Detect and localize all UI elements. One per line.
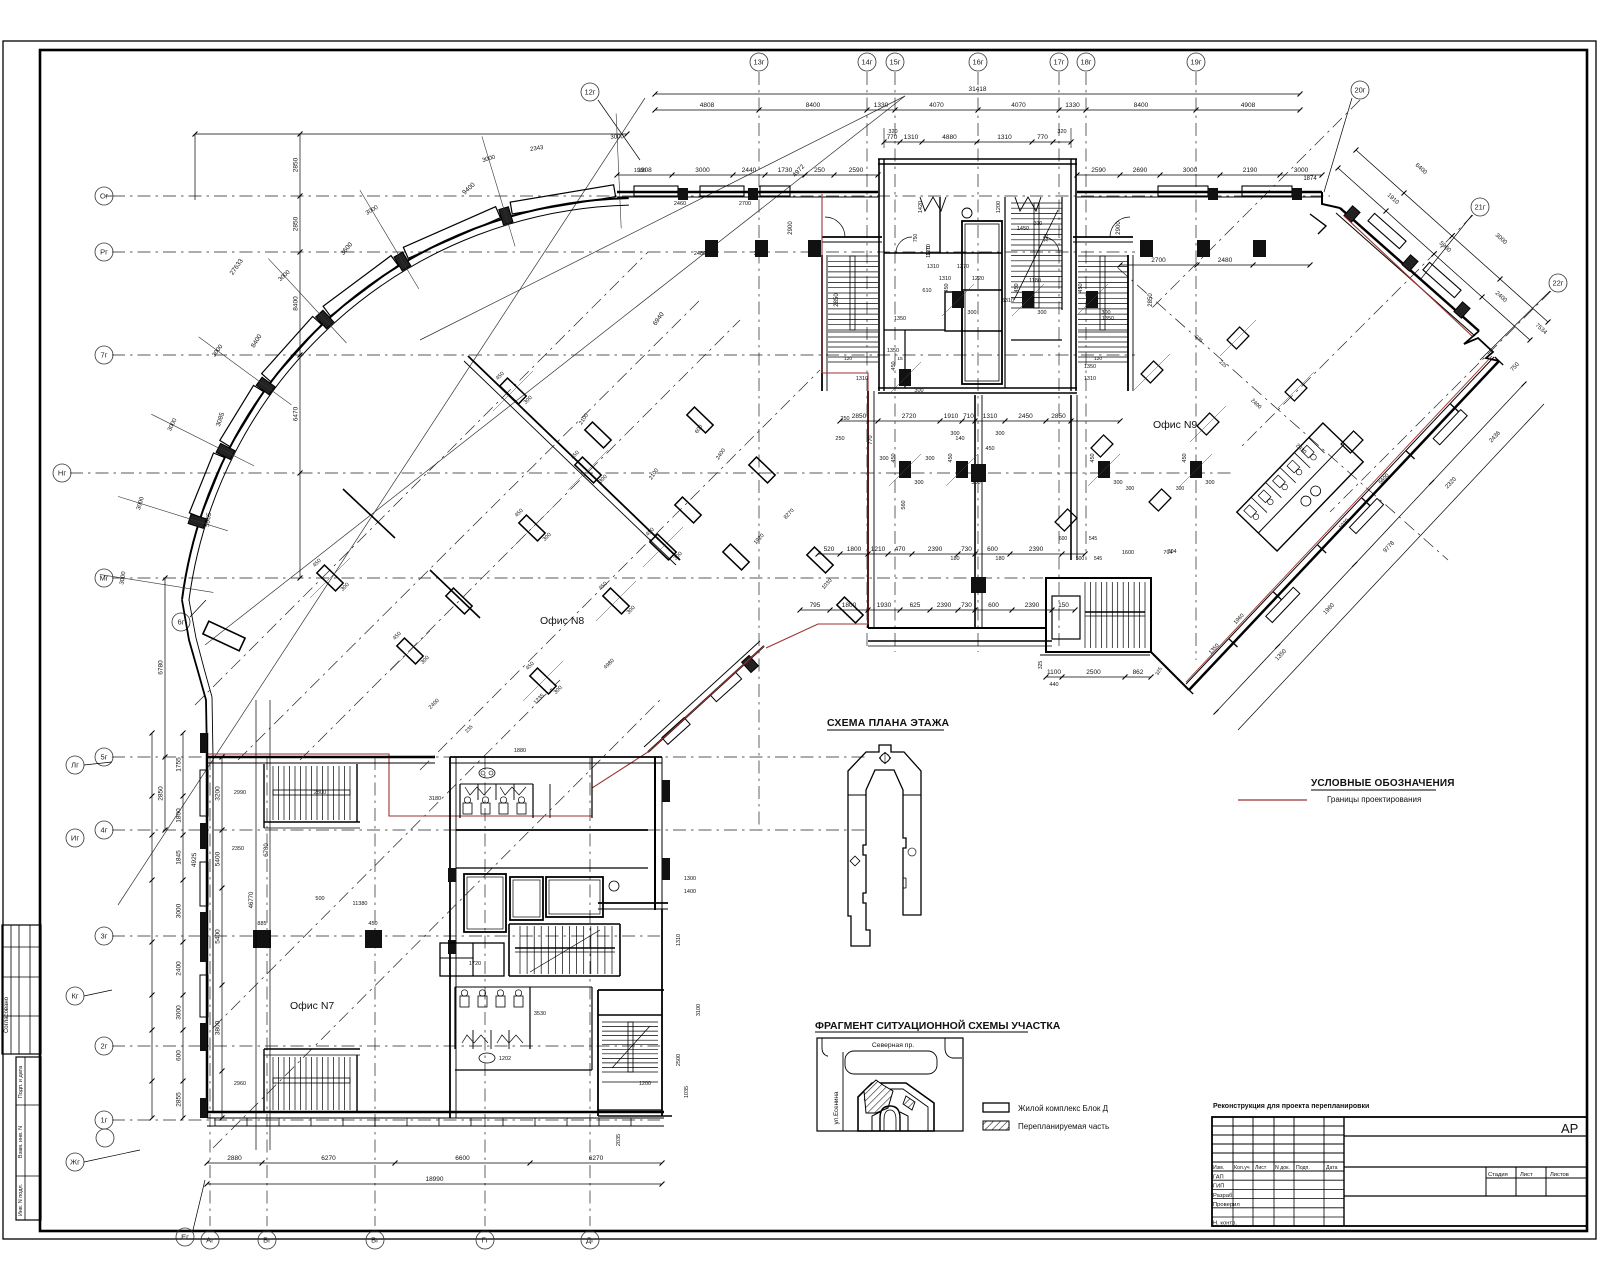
svg-text:1210: 1210 (871, 546, 886, 553)
svg-text:16г: 16г (972, 58, 983, 67)
svg-text:УСЛОВНЫЕ ОБОЗНАЧЕНИЯ: УСЛОВНЫЕ ОБОЗНАЧЕНИЯ (1311, 778, 1455, 789)
svg-text:2390: 2390 (937, 602, 952, 609)
svg-text:1400: 1400 (684, 889, 696, 895)
svg-text:6600: 6600 (455, 1155, 470, 1162)
svg-text:2450: 2450 (1018, 413, 1033, 420)
svg-text:300: 300 (1037, 310, 1046, 316)
svg-text:470: 470 (895, 546, 906, 553)
svg-text:3000: 3000 (1294, 167, 1309, 174)
svg-text:2800: 2800 (314, 790, 326, 796)
svg-text:2590: 2590 (849, 167, 864, 174)
svg-text:2035: 2035 (616, 1134, 622, 1146)
svg-text:2390: 2390 (1029, 546, 1044, 553)
svg-text:300: 300 (1113, 480, 1122, 486)
svg-text:3000: 3000 (695, 167, 710, 174)
svg-text:3г: 3г (101, 932, 108, 941)
svg-text:Изм.: Изм. (1213, 1165, 1224, 1171)
svg-text:250: 250 (814, 167, 825, 174)
svg-text:Границы проектирования: Границы проектирования (1327, 795, 1421, 804)
svg-text:2850: 2850 (293, 157, 300, 172)
svg-text:22г: 22г (1552, 279, 1563, 288)
svg-text:Подп. и дата: Подп. и дата (18, 1065, 24, 1098)
svg-text:Офис N7: Офис N7 (290, 1000, 334, 1012)
svg-text:2400: 2400 (176, 961, 183, 976)
svg-text:1035: 1035 (684, 1086, 690, 1098)
svg-text:2350: 2350 (232, 846, 244, 852)
svg-text:450: 450 (1014, 283, 1020, 292)
svg-text:1310: 1310 (904, 134, 919, 141)
svg-text:1310: 1310 (927, 264, 939, 270)
svg-text:300: 300 (925, 456, 934, 462)
svg-text:14г: 14г (861, 58, 872, 67)
svg-text:1270: 1270 (957, 264, 969, 270)
svg-text:1200: 1200 (996, 201, 1002, 213)
svg-text:3000: 3000 (1183, 167, 1198, 174)
svg-text:15: 15 (897, 356, 903, 362)
svg-text:310: 310 (1034, 221, 1043, 227)
svg-text:2390: 2390 (928, 546, 943, 553)
svg-text:150: 150 (1058, 602, 1069, 609)
svg-text:ГАП: ГАП (1213, 1175, 1224, 1181)
svg-text:АР: АР (1561, 1121, 1578, 1136)
svg-text:3530: 3530 (534, 1011, 546, 1017)
svg-text:2460: 2460 (674, 201, 686, 207)
svg-text:2г: 2г (101, 1042, 108, 1051)
svg-text:2500: 2500 (676, 1054, 682, 1066)
svg-text:2880: 2880 (227, 1155, 242, 1162)
svg-text:180: 180 (995, 556, 1004, 562)
svg-text:320: 320 (888, 129, 897, 135)
svg-text:3180: 3180 (429, 796, 441, 802)
svg-text:Инв. N подл.: Инв. N подл. (18, 1183, 24, 1216)
svg-text:3000: 3000 (610, 134, 624, 141)
svg-text:1220: 1220 (972, 276, 984, 282)
svg-text:17г: 17г (1053, 58, 1064, 67)
svg-text:300: 300 (914, 388, 923, 394)
svg-text:120: 120 (1094, 356, 1102, 362)
svg-text:8400: 8400 (1134, 102, 1149, 109)
svg-text:6780: 6780 (158, 660, 165, 675)
svg-text:5310: 5310 (1002, 298, 1014, 304)
svg-text:4925: 4925 (191, 852, 199, 867)
svg-text:1720: 1720 (469, 961, 481, 967)
svg-text:450: 450 (944, 283, 950, 292)
svg-text:2700: 2700 (1151, 257, 1166, 264)
svg-text:1900: 1900 (634, 168, 646, 174)
svg-text:710: 710 (963, 413, 974, 420)
svg-text:450: 450 (1078, 283, 1084, 292)
svg-text:2440: 2440 (742, 167, 757, 174)
svg-text:20г: 20г (1354, 86, 1365, 95)
svg-text:Вг: Вг (371, 1236, 379, 1245)
svg-text:730: 730 (961, 602, 972, 609)
svg-text:Дата: Дата (1326, 1165, 1338, 1171)
svg-text:1100: 1100 (1047, 669, 1061, 676)
svg-text:1600: 1600 (1122, 550, 1134, 556)
svg-text:4070: 4070 (929, 102, 944, 109)
svg-text:300: 300 (1205, 480, 1214, 486)
svg-text:450: 450 (1182, 453, 1188, 462)
svg-text:2855: 2855 (176, 1092, 183, 1107)
svg-text:Офис N9: Офис N9 (1153, 419, 1197, 431)
svg-text:600: 600 (988, 602, 999, 609)
svg-text:13г: 13г (753, 58, 764, 67)
svg-text:1930: 1930 (877, 602, 892, 609)
svg-text:730: 730 (961, 546, 972, 553)
svg-text:Реконструкция для проекта п: Реконструкция для проекта перепланировки (1213, 1103, 1369, 1110)
svg-text:1310: 1310 (676, 934, 682, 946)
svg-text:СХЕМА ПЛАНА ЭТАЖА: СХЕМА ПЛАНА ЭТАЖА (827, 717, 950, 729)
svg-text:2690: 2690 (1133, 167, 1148, 174)
svg-text:1330: 1330 (874, 102, 889, 109)
svg-text:885: 885 (257, 921, 266, 927)
svg-text:Иг: Иг (71, 834, 79, 843)
svg-text:862: 862 (1133, 669, 1144, 676)
svg-text:2850: 2850 (158, 786, 165, 801)
svg-text:Лг: Лг (71, 761, 79, 770)
svg-text:7г: 7г (101, 351, 108, 360)
svg-text:2700: 2700 (739, 201, 751, 207)
svg-text:Листов: Листов (1550, 1172, 1569, 1178)
svg-text:6470: 6470 (293, 406, 300, 421)
svg-text:5г: 5г (101, 753, 108, 762)
svg-text:18990: 18990 (425, 1176, 443, 1183)
svg-text:704: 704 (1167, 549, 1176, 555)
svg-text:520: 520 (824, 546, 835, 553)
svg-text:3000: 3000 (176, 903, 183, 918)
svg-text:2720: 2720 (902, 413, 917, 420)
svg-text:Взам. инв. N: Взам. инв. N (18, 1126, 24, 1158)
svg-text:Подп.: Подп. (1296, 1165, 1310, 1171)
svg-text:180: 180 (950, 556, 959, 562)
svg-text:4908: 4908 (1241, 102, 1256, 109)
svg-text:1350: 1350 (1084, 364, 1096, 370)
svg-text:2990: 2990 (234, 790, 246, 796)
svg-text:Кг: Кг (71, 992, 78, 1001)
svg-text:Лист: Лист (1255, 1165, 1267, 1171)
svg-text:2190: 2190 (1243, 167, 1258, 174)
svg-text:6270: 6270 (589, 1155, 604, 1162)
svg-text:4808: 4808 (700, 102, 715, 109)
svg-text:1330: 1330 (1065, 102, 1080, 109)
svg-text:5400: 5400 (215, 851, 222, 866)
svg-text:1200: 1200 (639, 1081, 651, 1087)
svg-text:ФРАГМЕНТ СИТУАЦИОННОЙ СХЕМЫ: ФРАГМЕНТ СИТУАЦИОННОЙ СХЕМЫ УЧАСТКА (815, 1019, 1061, 1032)
svg-text:140: 140 (955, 436, 964, 442)
svg-text:1350: 1350 (887, 348, 899, 354)
svg-text:500: 500 (315, 896, 324, 902)
svg-text:300: 300 (971, 480, 980, 486)
svg-text:Жг: Жг (70, 1158, 80, 1167)
svg-text:1880: 1880 (514, 748, 526, 754)
svg-text:6г: 6г (178, 618, 185, 627)
svg-text:300: 300 (914, 480, 923, 486)
svg-text:300: 300 (879, 456, 888, 462)
svg-text:2590: 2590 (1091, 167, 1106, 174)
svg-text:1310: 1310 (939, 276, 951, 282)
svg-text:1874: 1874 (1303, 176, 1317, 182)
svg-text:Нг: Нг (58, 469, 66, 478)
svg-text:2480: 2480 (1218, 257, 1233, 264)
svg-text:2850: 2850 (293, 216, 300, 231)
svg-text:4880: 4880 (942, 134, 957, 141)
svg-text:440: 440 (1049, 682, 1058, 688)
svg-text:Перепланируемая часть: Перепланируемая часть (1018, 1122, 1109, 1131)
svg-text:450: 450 (891, 361, 897, 370)
svg-text:Аг: Аг (206, 1236, 214, 1245)
svg-text:545: 545 (1094, 556, 1103, 562)
svg-text:770: 770 (887, 134, 898, 141)
svg-text:Гг: Гг (482, 1236, 489, 1245)
svg-text:450: 450 (368, 921, 377, 927)
svg-text:1420: 1420 (918, 201, 924, 213)
svg-text:720: 720 (1044, 234, 1050, 243)
svg-text:8400: 8400 (293, 296, 300, 311)
svg-text:770: 770 (1037, 134, 1048, 141)
svg-text:300: 300 (967, 310, 976, 316)
svg-text:600: 600 (176, 1050, 183, 1061)
svg-text:11380: 11380 (353, 901, 368, 907)
svg-text:Офис N8: Офис N8 (540, 615, 584, 627)
svg-text:300: 300 (1176, 486, 1185, 492)
svg-text:2960: 2960 (234, 1081, 246, 1087)
svg-text:1300: 1300 (684, 876, 696, 882)
svg-text:450: 450 (891, 453, 897, 462)
svg-text:1310: 1310 (997, 134, 1012, 141)
svg-text:ул.Есенина: ул.Есенина (833, 1091, 840, 1124)
svg-text:325: 325 (1038, 661, 1044, 670)
svg-text:1450: 1450 (1017, 226, 1029, 232)
svg-text:2900: 2900 (1116, 221, 1122, 235)
svg-text:15г: 15г (889, 58, 900, 67)
svg-text:610: 610 (922, 288, 931, 294)
svg-text:ГИП: ГИП (1213, 1184, 1224, 1190)
svg-text:5400: 5400 (215, 929, 222, 944)
svg-text:1202: 1202 (499, 1056, 511, 1062)
svg-text:6270: 6270 (321, 1155, 336, 1162)
svg-text:300: 300 (995, 431, 1004, 437)
svg-text:1170: 1170 (926, 246, 932, 258)
svg-text:1755: 1755 (176, 757, 183, 772)
svg-text:2700: 2700 (754, 251, 766, 257)
svg-text:Рг: Рг (100, 248, 108, 257)
svg-text:1350: 1350 (894, 316, 906, 322)
svg-text:21г: 21г (1474, 203, 1485, 212)
svg-text:4070: 4070 (1011, 102, 1026, 109)
svg-text:625: 625 (910, 602, 921, 609)
svg-text:600: 600 (1059, 536, 1068, 542)
svg-text:2850: 2850 (1148, 293, 1154, 307)
svg-text:1350: 1350 (1102, 316, 1114, 322)
svg-text:3000: 3000 (176, 1005, 183, 1020)
svg-text:120: 120 (844, 356, 852, 362)
svg-text:Жилой комплекс Блок Д: Жилой комплекс Блок Д (1018, 1104, 1109, 1113)
svg-text:300: 300 (1126, 486, 1135, 492)
svg-text:8400: 8400 (806, 102, 821, 109)
svg-text:1310: 1310 (983, 413, 998, 420)
svg-text:2850: 2850 (852, 413, 867, 420)
svg-text:600: 600 (987, 546, 998, 553)
svg-text:18г: 18г (1080, 58, 1091, 67)
svg-text:1845: 1845 (176, 850, 183, 865)
svg-text:Ег: Ег (181, 1233, 189, 1242)
svg-text:12г: 12г (584, 88, 595, 97)
svg-text:2390: 2390 (1025, 602, 1040, 609)
svg-text:250: 250 (835, 436, 844, 442)
svg-text:Н. контр.: Н. контр. (1213, 1221, 1237, 1227)
svg-text:500: 500 (1076, 556, 1085, 562)
svg-text:31418: 31418 (968, 86, 986, 93)
svg-text:N док.: N док. (1275, 1165, 1290, 1171)
svg-text:3100: 3100 (696, 1004, 702, 1016)
svg-text:560: 560 (901, 500, 907, 509)
svg-text:450: 450 (948, 453, 954, 462)
svg-text:46770: 46770 (249, 891, 255, 908)
svg-text:545: 545 (1089, 536, 1098, 542)
svg-text:4г: 4г (101, 826, 108, 835)
svg-text:320: 320 (1057, 129, 1066, 135)
svg-text:1180: 1180 (1029, 278, 1041, 284)
svg-text:1310: 1310 (856, 376, 868, 382)
svg-text:450: 450 (985, 446, 994, 452)
svg-text:450: 450 (1090, 453, 1096, 462)
svg-text:Северная пр.: Северная пр. (872, 1042, 914, 1049)
svg-text:6780: 6780 (264, 843, 270, 857)
svg-text:Согласовано: Согласовано (4, 996, 10, 1033)
svg-text:1800: 1800 (176, 808, 183, 823)
svg-text:Кол.уч: Кол.уч (1234, 1165, 1250, 1171)
svg-text:1730: 1730 (778, 167, 793, 174)
svg-text:Лист: Лист (1520, 1172, 1533, 1178)
svg-text:2850: 2850 (1051, 413, 1066, 420)
svg-text:Стадия: Стадия (1488, 1172, 1508, 1178)
svg-text:1г: 1г (101, 1116, 108, 1125)
svg-text:3800: 3800 (215, 1020, 222, 1035)
svg-text:3200: 3200 (215, 786, 222, 801)
svg-text:1800: 1800 (847, 546, 862, 553)
svg-text:2480: 2480 (694, 251, 706, 257)
svg-text:19г: 19г (1190, 58, 1201, 67)
svg-text:2900: 2900 (788, 221, 794, 235)
svg-text:Разраб.: Разраб. (1213, 1193, 1234, 1199)
svg-text:770: 770 (868, 435, 874, 444)
svg-text:Проверил: Проверил (1213, 1202, 1240, 1208)
svg-text:2500: 2500 (1086, 669, 1101, 676)
svg-text:Дг: Дг (586, 1236, 594, 1245)
svg-text:1310: 1310 (1084, 376, 1096, 382)
svg-text:750: 750 (913, 234, 919, 243)
svg-text:1800: 1800 (842, 602, 857, 609)
svg-text:Бг: Бг (263, 1236, 271, 1245)
svg-text:795: 795 (810, 602, 821, 609)
svg-text:250: 250 (840, 416, 849, 422)
svg-text:2850: 2850 (834, 293, 840, 307)
svg-text:1910: 1910 (944, 413, 959, 420)
